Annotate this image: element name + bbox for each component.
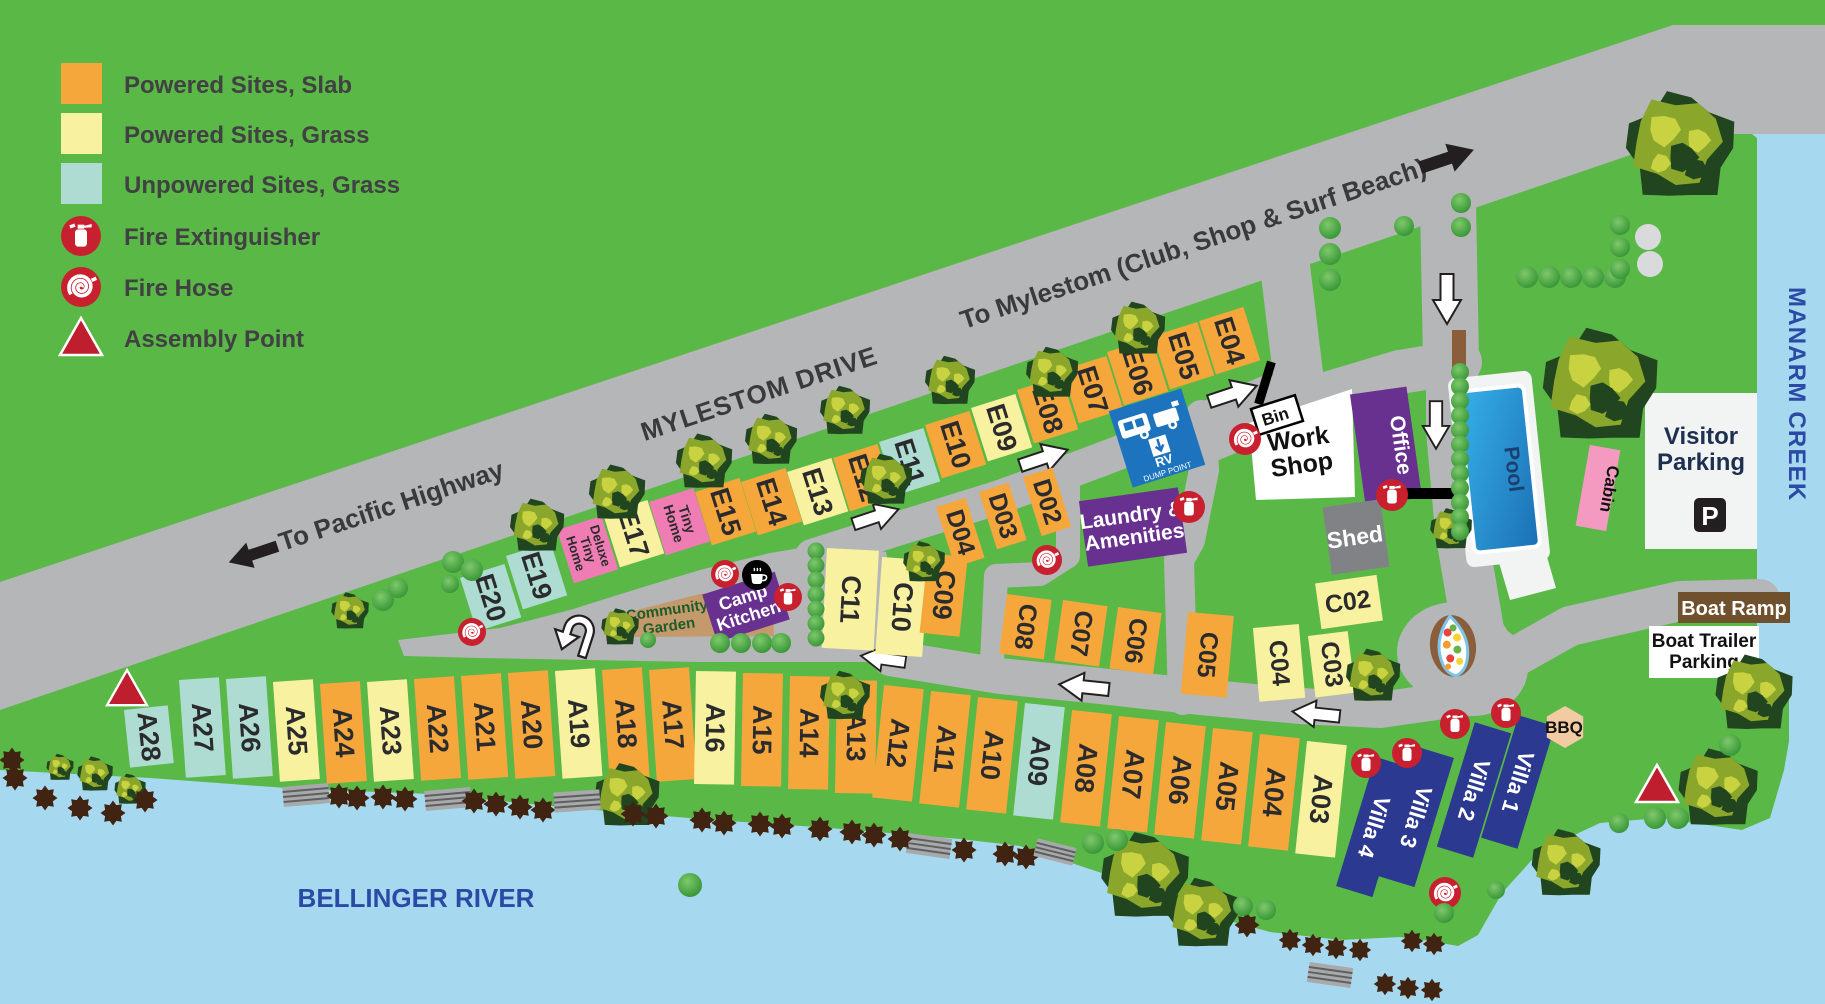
svg-text:A25: A25 bbox=[280, 705, 313, 757]
svg-text:C11: C11 bbox=[834, 575, 866, 625]
svg-text:C04: C04 bbox=[1263, 639, 1295, 687]
svg-text:MANARM CREEK: MANARM CREEK bbox=[1783, 287, 1810, 501]
svg-text:A15: A15 bbox=[747, 705, 778, 755]
svg-text:A27: A27 bbox=[186, 702, 219, 754]
svg-text:Boat Trailer: Boat Trailer bbox=[1652, 631, 1757, 652]
svg-text:Parking: Parking bbox=[1669, 652, 1739, 673]
svg-text:A26: A26 bbox=[233, 702, 266, 754]
svg-text:A06: A06 bbox=[1162, 754, 1197, 806]
svg-text:Parking: Parking bbox=[1657, 449, 1745, 476]
svg-text:Fire Hose: Fire Hose bbox=[124, 275, 233, 302]
svg-text:A21: A21 bbox=[468, 701, 501, 753]
svg-text:BELLINGER RIVER: BELLINGER RIVER bbox=[298, 883, 535, 913]
svg-text:A19: A19 bbox=[562, 698, 595, 750]
svg-text:A12: A12 bbox=[880, 717, 915, 769]
svg-text:Powered Sites, Grass: Powered Sites, Grass bbox=[124, 122, 369, 149]
svg-text:Unpowered Sites, Grass: Unpowered Sites, Grass bbox=[124, 172, 400, 199]
svg-text:A07: A07 bbox=[1115, 748, 1150, 800]
svg-text:A08: A08 bbox=[1068, 742, 1103, 794]
svg-text:C03: C03 bbox=[1315, 640, 1348, 689]
svg-text:A20: A20 bbox=[515, 699, 548, 751]
svg-text:A03: A03 bbox=[1303, 773, 1338, 825]
svg-text:A10: A10 bbox=[974, 729, 1009, 781]
svg-text:A14: A14 bbox=[794, 708, 825, 758]
svg-text:C10: C10 bbox=[885, 581, 918, 633]
svg-text:A16: A16 bbox=[700, 703, 731, 753]
svg-text:Powered Sites, Slab: Powered Sites, Slab bbox=[124, 72, 352, 99]
svg-text:A22: A22 bbox=[421, 703, 454, 755]
svg-text:Fire Extinguisher: Fire Extinguisher bbox=[124, 224, 320, 251]
svg-text:Boat Ramp: Boat Ramp bbox=[1681, 598, 1787, 620]
svg-text:A04: A04 bbox=[1256, 766, 1291, 818]
svg-text:A18: A18 bbox=[609, 698, 642, 750]
svg-text:BBQ: BBQ bbox=[1545, 718, 1583, 737]
svg-text:A28: A28 bbox=[131, 710, 166, 762]
svg-text:A13: A13 bbox=[841, 712, 872, 762]
svg-text:A23: A23 bbox=[374, 705, 407, 757]
svg-text:P: P bbox=[1701, 501, 1718, 531]
svg-text:A05: A05 bbox=[1209, 760, 1244, 812]
svg-text:Assembly Point: Assembly Point bbox=[124, 326, 304, 353]
svg-text:C05: C05 bbox=[1191, 631, 1223, 679]
svg-text:C08: C08 bbox=[1009, 602, 1043, 651]
svg-text:Visitor: Visitor bbox=[1664, 423, 1738, 450]
svg-text:A09: A09 bbox=[1021, 735, 1056, 787]
svg-text:A24: A24 bbox=[327, 707, 360, 759]
svg-text:A17: A17 bbox=[656, 699, 689, 751]
svg-text:A11: A11 bbox=[928, 724, 963, 775]
